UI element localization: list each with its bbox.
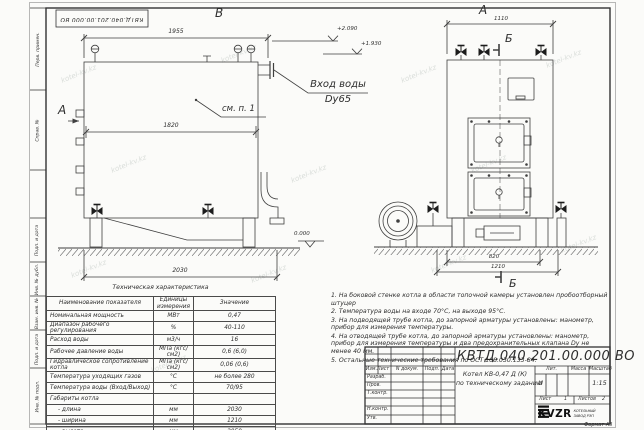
spec-header-row: Наименование показателя Единицы измерени…	[47, 297, 276, 311]
spec-row: Температура уходящих газов°Сне более 280	[47, 372, 276, 383]
drawing-sheet: kotel-kv.kz kotel-kv.kz kotel-kv.kz kote…	[0, 0, 644, 430]
margin-field-inv-dubl: Инв. № дубл.	[30, 262, 46, 296]
view-dir-label-a: А	[58, 104, 66, 117]
spec-cell: не более 280	[194, 372, 276, 383]
spec-row: Расход водым3/ч16	[47, 335, 276, 346]
sheet-label: Лист	[539, 397, 551, 402]
col-izm-list: Изм.Лист	[364, 367, 391, 372]
view-label-v: В	[215, 7, 223, 20]
lit-label: Лит.	[535, 367, 568, 372]
spec-row: - ширинамм1210	[47, 416, 276, 427]
spec-cell: Температура уходящих газов	[47, 372, 154, 383]
dimension-lines-left	[81, 34, 280, 281]
view-arrow-a	[68, 119, 79, 124]
margin-field-inv-podl: Инв. № подл.	[30, 368, 46, 424]
col-n-dokum: N докум.	[391, 367, 423, 372]
spec-cell: 16	[194, 335, 276, 346]
spec-row: Номинальная мощностьМВт0,47	[47, 311, 276, 322]
spec-row: Габариты котла	[47, 394, 276, 405]
spec-cell: - ширина	[47, 416, 154, 427]
scale-value: 1:15	[589, 380, 610, 387]
spec-cell: 0,6 (6,0)	[194, 346, 276, 359]
spec-cell: мм	[154, 416, 194, 427]
dim-1820: 1820	[149, 123, 193, 130]
margin-field-podp-data-2: Подп. и дата	[30, 330, 46, 368]
format-label: Формат А3	[584, 423, 612, 429]
spec-cell: Гидравлическое сопротивление котла	[47, 359, 154, 372]
spec-cell: - длина	[47, 405, 154, 416]
spec-table: Наименование показателя Единицы измерени…	[46, 296, 276, 430]
spec-cell: 0,47	[194, 311, 276, 322]
spec-cell: %	[154, 322, 194, 335]
sheets-value: 2	[602, 397, 605, 402]
row-nkontr: Н.контр.	[367, 407, 388, 412]
boiler-side-view	[76, 45, 284, 247]
col-podp: Подп.	[423, 367, 441, 372]
spec-row: - высотамм2050	[47, 427, 276, 430]
spec-cell: мм	[154, 427, 194, 430]
spec-cell: 0,06 (0,6)	[194, 359, 276, 372]
boiler-front-view	[447, 46, 567, 248]
spec-cell: Номинальная мощность	[47, 311, 154, 322]
spec-cell: °С	[154, 383, 194, 394]
elevation-1930: +1.930	[361, 41, 381, 47]
margin-field-perv-primen: Перв. примен.	[30, 8, 46, 90]
spec-cell: м3/ч	[154, 335, 194, 346]
spec-cell: - высота	[47, 427, 154, 430]
scale-label: Масштаб	[589, 367, 610, 372]
spec-cell: Рабочее давление воды	[47, 346, 154, 359]
spec-cell: МВт	[154, 311, 194, 322]
note-2: 2. Температура воды на входе 70°С, на вы…	[331, 308, 609, 316]
spec-header-value: Значение	[194, 297, 276, 311]
margin-field-vzam-inv: Взам. инв. №	[30, 296, 46, 330]
row-prov: Пров.	[367, 383, 381, 388]
spec-cell: МПа (кгс/см2)	[154, 359, 194, 372]
section-label-b-top: Б	[505, 33, 513, 45]
inlet-note-line2: Dy65	[306, 94, 370, 105]
mass-label: Масса	[568, 367, 589, 372]
kvzr-logo: KVZR КОТЕЛЬНЫЙ ЗАВОД РЭП	[538, 405, 596, 422]
top-stamp: КВТД.040.201.00.000 ВО	[56, 10, 148, 27]
sheet-value: 1	[564, 397, 567, 402]
col-data: Дата	[441, 367, 455, 372]
dim-1110: 1110	[485, 16, 517, 22]
spec-cell: 2030	[194, 405, 276, 416]
row-razrab: Разраб.	[367, 375, 386, 380]
spec-header-name: Наименование показателя	[47, 297, 154, 311]
elevation-0000: 0.000	[294, 231, 310, 237]
row-utv: Утв.	[367, 416, 377, 421]
spec-row: Гидравлическое сопротивление котлаМПа (к…	[47, 359, 276, 372]
spec-cell: мм	[154, 405, 194, 416]
spec-cell: Температура воды (Вход/Выход)	[47, 383, 154, 394]
spec-cell: Диапазон рабочего регулирования	[47, 322, 154, 335]
spec-row: Температура воды (Вход/Выход)°С70/95	[47, 383, 276, 394]
dim-1210: 1210	[478, 264, 518, 270]
dimension-lines-right	[434, 20, 561, 276]
kvzr-logo-mark	[538, 405, 549, 418]
section-label-b-bottom: Б	[509, 278, 517, 290]
spec-cell: 40-110	[194, 322, 276, 335]
product-title-line1: Котел КВ-0,47 Д (К)	[456, 372, 534, 379]
spec-cell: °С	[154, 372, 194, 383]
margin-field-podp-data-1: Подп. и дата	[30, 218, 46, 262]
spec-cell	[154, 394, 194, 405]
spec-table-title: Техническая характеристика	[46, 285, 275, 292]
note-3: 3. На подводящей трубе котла, до запорно…	[331, 317, 609, 332]
spec-cell: Расход воды	[47, 335, 154, 346]
inlet-note-line1: Вход воды	[306, 79, 370, 90]
spec-cell: 70/95	[194, 383, 276, 394]
spec-cell	[194, 394, 276, 405]
spec-cell: МПа (кгс/см2)	[154, 346, 194, 359]
spec-row: Рабочее давление водыМПа (кгс/см2)0,6 (6…	[47, 346, 276, 359]
row-tkontr: Т.контр.	[367, 391, 388, 396]
lit-value: И	[535, 380, 546, 387]
spec-row: Диапазон рабочего регулирования%40-110	[47, 322, 276, 335]
spec-cell: 1210	[194, 416, 276, 427]
spec-cell: Габариты котла	[47, 394, 154, 405]
spec-row: - длинамм2030	[47, 405, 276, 416]
elevation-2090: +2.090	[337, 26, 357, 32]
kvzr-logo-sub2: ЗАВОД РЭП	[574, 414, 596, 418]
product-title-line2: по техническому заданию	[456, 381, 534, 388]
fan-blower	[379, 202, 452, 247]
sheets-label: Листов	[578, 397, 596, 402]
elevation-marks	[272, 36, 362, 247]
doc-number: КВТД.040.201.00.000 ВО	[457, 350, 608, 364]
margin-field-sprav-no: Справ. №	[30, 90, 46, 170]
spec-header-units: Единицы измерения	[154, 297, 194, 311]
note-1: 1. На боковой стенке котла в области топ…	[331, 292, 609, 307]
dim-820: 820	[474, 254, 514, 260]
spec-cell: 2050	[194, 427, 276, 430]
dim-2030: 2030	[158, 268, 202, 275]
callout-see-note-1: см. п. 1	[222, 105, 255, 114]
dim-1955: 1955	[154, 29, 198, 36]
kvzr-logo-sub1: КОТЕЛЬНЫЙ	[574, 409, 596, 413]
